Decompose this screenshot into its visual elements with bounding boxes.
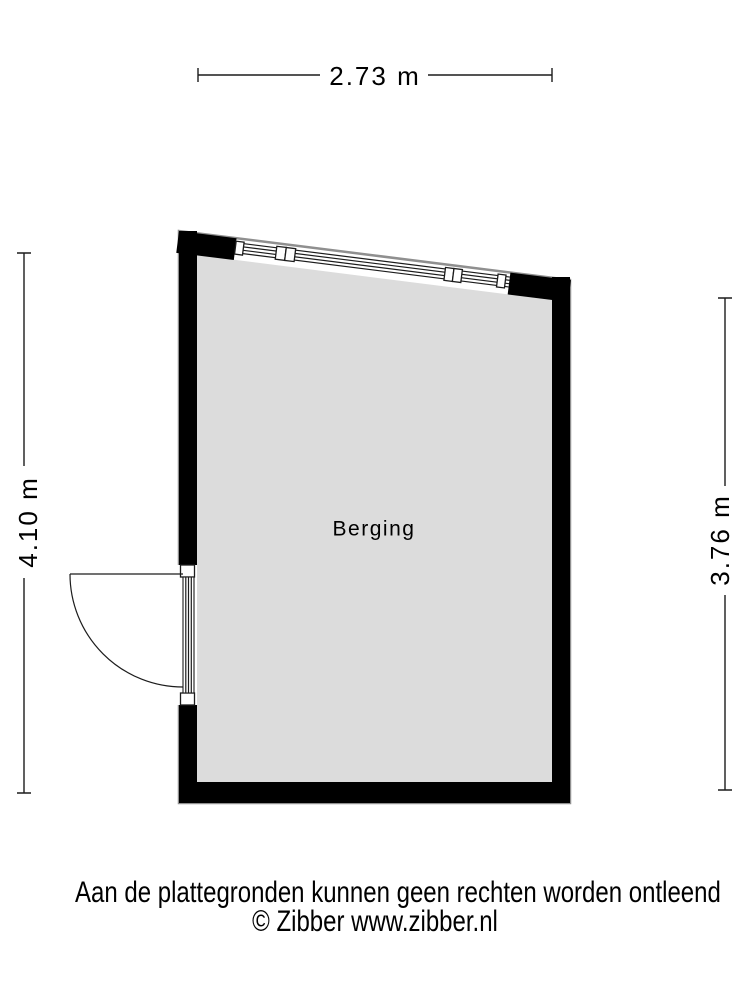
window-end-left xyxy=(235,241,245,255)
floorplan-drawing: 2.73 m 4.10 m 3.76 m Berging xyxy=(0,0,750,1000)
wall-right xyxy=(552,277,570,803)
door-left xyxy=(70,565,195,705)
wall-bottom xyxy=(179,782,570,803)
door-frame-top xyxy=(181,565,195,577)
floorplan-page: 2.73 m 4.10 m 3.76 m Berging Aan de plat… xyxy=(0,0,750,1000)
window-end-right xyxy=(497,274,507,288)
dimension-top-label: 2.73 m xyxy=(329,61,421,91)
dimension-top: 2.73 m xyxy=(198,61,552,91)
door-frame-bottom xyxy=(181,693,195,705)
dimension-right: 3.76 m xyxy=(705,298,735,790)
door-swing-arc xyxy=(70,574,183,687)
dimension-left-label: 4.10 m xyxy=(13,476,43,568)
room-label: Berging xyxy=(333,518,416,541)
wall-left-upper xyxy=(179,231,197,565)
window-mullion-right xyxy=(444,267,462,282)
dimension-right-label: 3.76 m xyxy=(705,494,735,586)
footer-copyright: © Zibber www.zibber.nl xyxy=(75,907,675,936)
window-mullion-left xyxy=(275,246,295,261)
footer-disclaimer: Aan de plattegronden kunnen geen rechten… xyxy=(75,878,675,907)
dimension-left: 4.10 m xyxy=(13,253,43,793)
